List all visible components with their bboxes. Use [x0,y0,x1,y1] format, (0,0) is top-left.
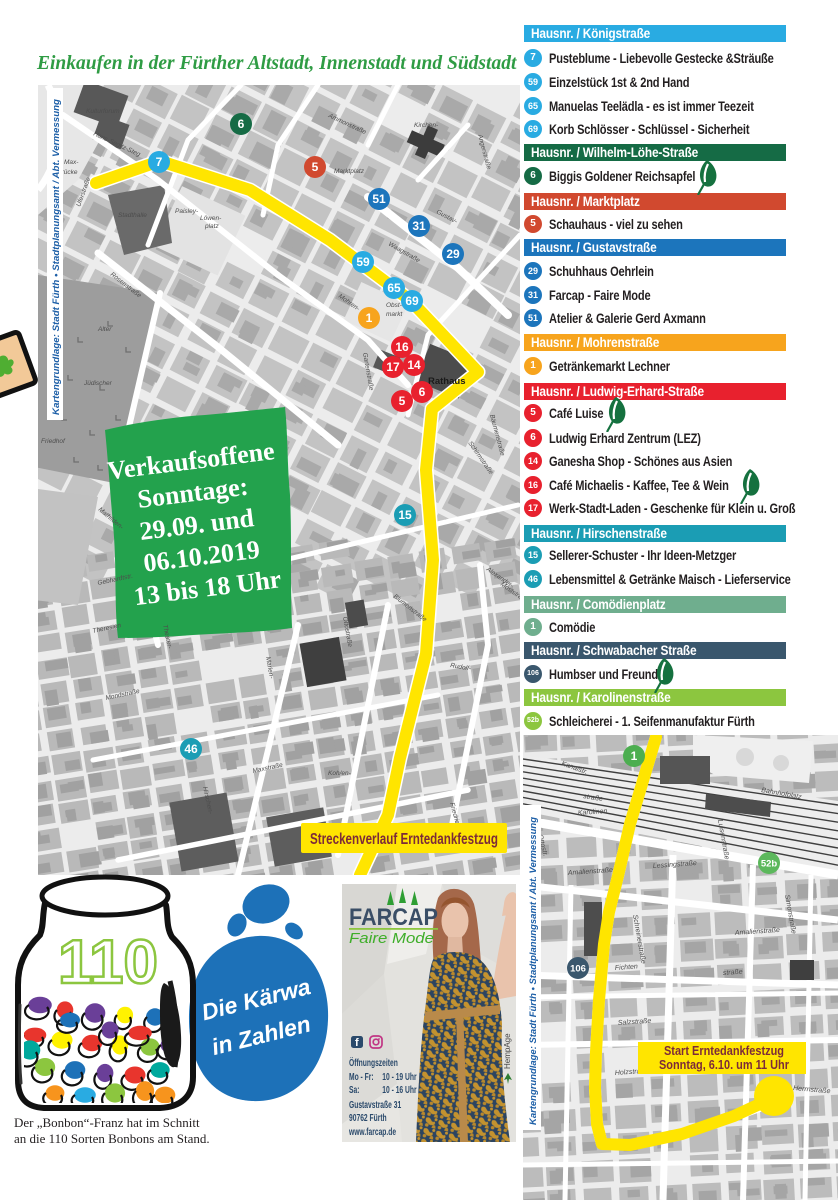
svg-text:Streckenverlauf Erntedankfestz: Streckenverlauf Erntedankfestzug [310,831,498,848]
svg-text:7: 7 [156,155,163,169]
svg-text:Start Erntedankfestzug: Start Erntedankfestzug [664,1043,784,1058]
svg-text:Faire Mode: Faire Mode [349,930,434,947]
svg-text:Marktplatz: Marktplatz [334,168,365,175]
svg-text:65: 65 [387,281,401,295]
svg-text:Kartengrundlage: Stadt Fürth •: Kartengrundlage: Stadt Fürth • Stadtplan… [528,816,538,1125]
svg-text:Sonntag, 6.10. um 11 Uhr: Sonntag, 6.10. um 11 Uhr [659,1057,789,1072]
svg-text:markt: markt [386,311,403,318]
svg-text:6: 6 [419,385,426,399]
svg-text:Max-: Max- [64,159,79,166]
svg-text:Alter: Alter [97,326,112,333]
svg-text:Kulturforum: Kulturforum [86,108,120,115]
svg-text:FARCAP: FARCAP [349,904,438,931]
svg-text:31: 31 [412,219,426,233]
svg-text:110: 110 [58,928,158,997]
svg-text:106: 106 [570,963,586,974]
svg-text:5: 5 [399,394,406,408]
svg-text:straße: straße [723,969,743,977]
svg-text:HempAge: HempAge [503,1033,512,1069]
svg-text:90762 Fürth: 90762 Fürth [349,1111,387,1123]
svg-text:Stadthalle: Stadthalle [118,212,147,219]
svg-text:Jüdischer: Jüdischer [83,380,113,387]
svg-text:15: 15 [398,508,412,522]
svg-text:1: 1 [366,311,373,325]
svg-text:Koh/en-: Koh/en- [328,770,352,777]
svg-text:platz: platz [204,223,219,230]
svg-text:51: 51 [372,192,386,206]
svg-text:Paisley-: Paisley- [175,208,199,215]
svg-text:46: 46 [184,742,198,756]
svg-text:Obst-: Obst- [386,302,403,309]
svg-text:Friedhof: Friedhof [41,438,66,445]
svg-text:Mo - Fr:: Mo - Fr: [349,1070,374,1082]
svg-text:5: 5 [312,160,319,174]
svg-text:Gustavstraße 31: Gustavstraße 31 [349,1098,401,1110]
svg-text:59: 59 [356,255,370,269]
svg-text:1: 1 [631,749,638,763]
svg-text:Kartengrundlage: Stadt Fürth •: Kartengrundlage: Stadt Fürth • Stadtplan… [51,98,61,415]
svg-text:Sa:: Sa: [349,1083,359,1095]
svg-text:www.farcap.de: www.farcap.de [348,1125,396,1137]
svg-text:6: 6 [238,117,245,131]
svg-text:69: 69 [405,294,419,308]
svg-text:Löwen-: Löwen- [200,215,222,222]
svg-text:10 - 19 Uhr: 10 - 19 Uhr [382,1070,417,1082]
svg-text:16: 16 [395,340,409,354]
svg-text:29: 29 [446,247,460,261]
svg-text:Kirchen-: Kirchen- [414,122,439,129]
svg-text:52b: 52b [761,858,778,869]
svg-text:f: f [355,1037,359,1049]
svg-text:10 - 16 Uhr: 10 - 16 Uhr [382,1083,417,1095]
svg-text:Öffnungszeiten: Öffnungszeiten [349,1056,398,1068]
svg-text:17: 17 [386,360,400,374]
svg-text:14: 14 [407,358,421,372]
svg-text:Rathaus: Rathaus [428,376,465,387]
